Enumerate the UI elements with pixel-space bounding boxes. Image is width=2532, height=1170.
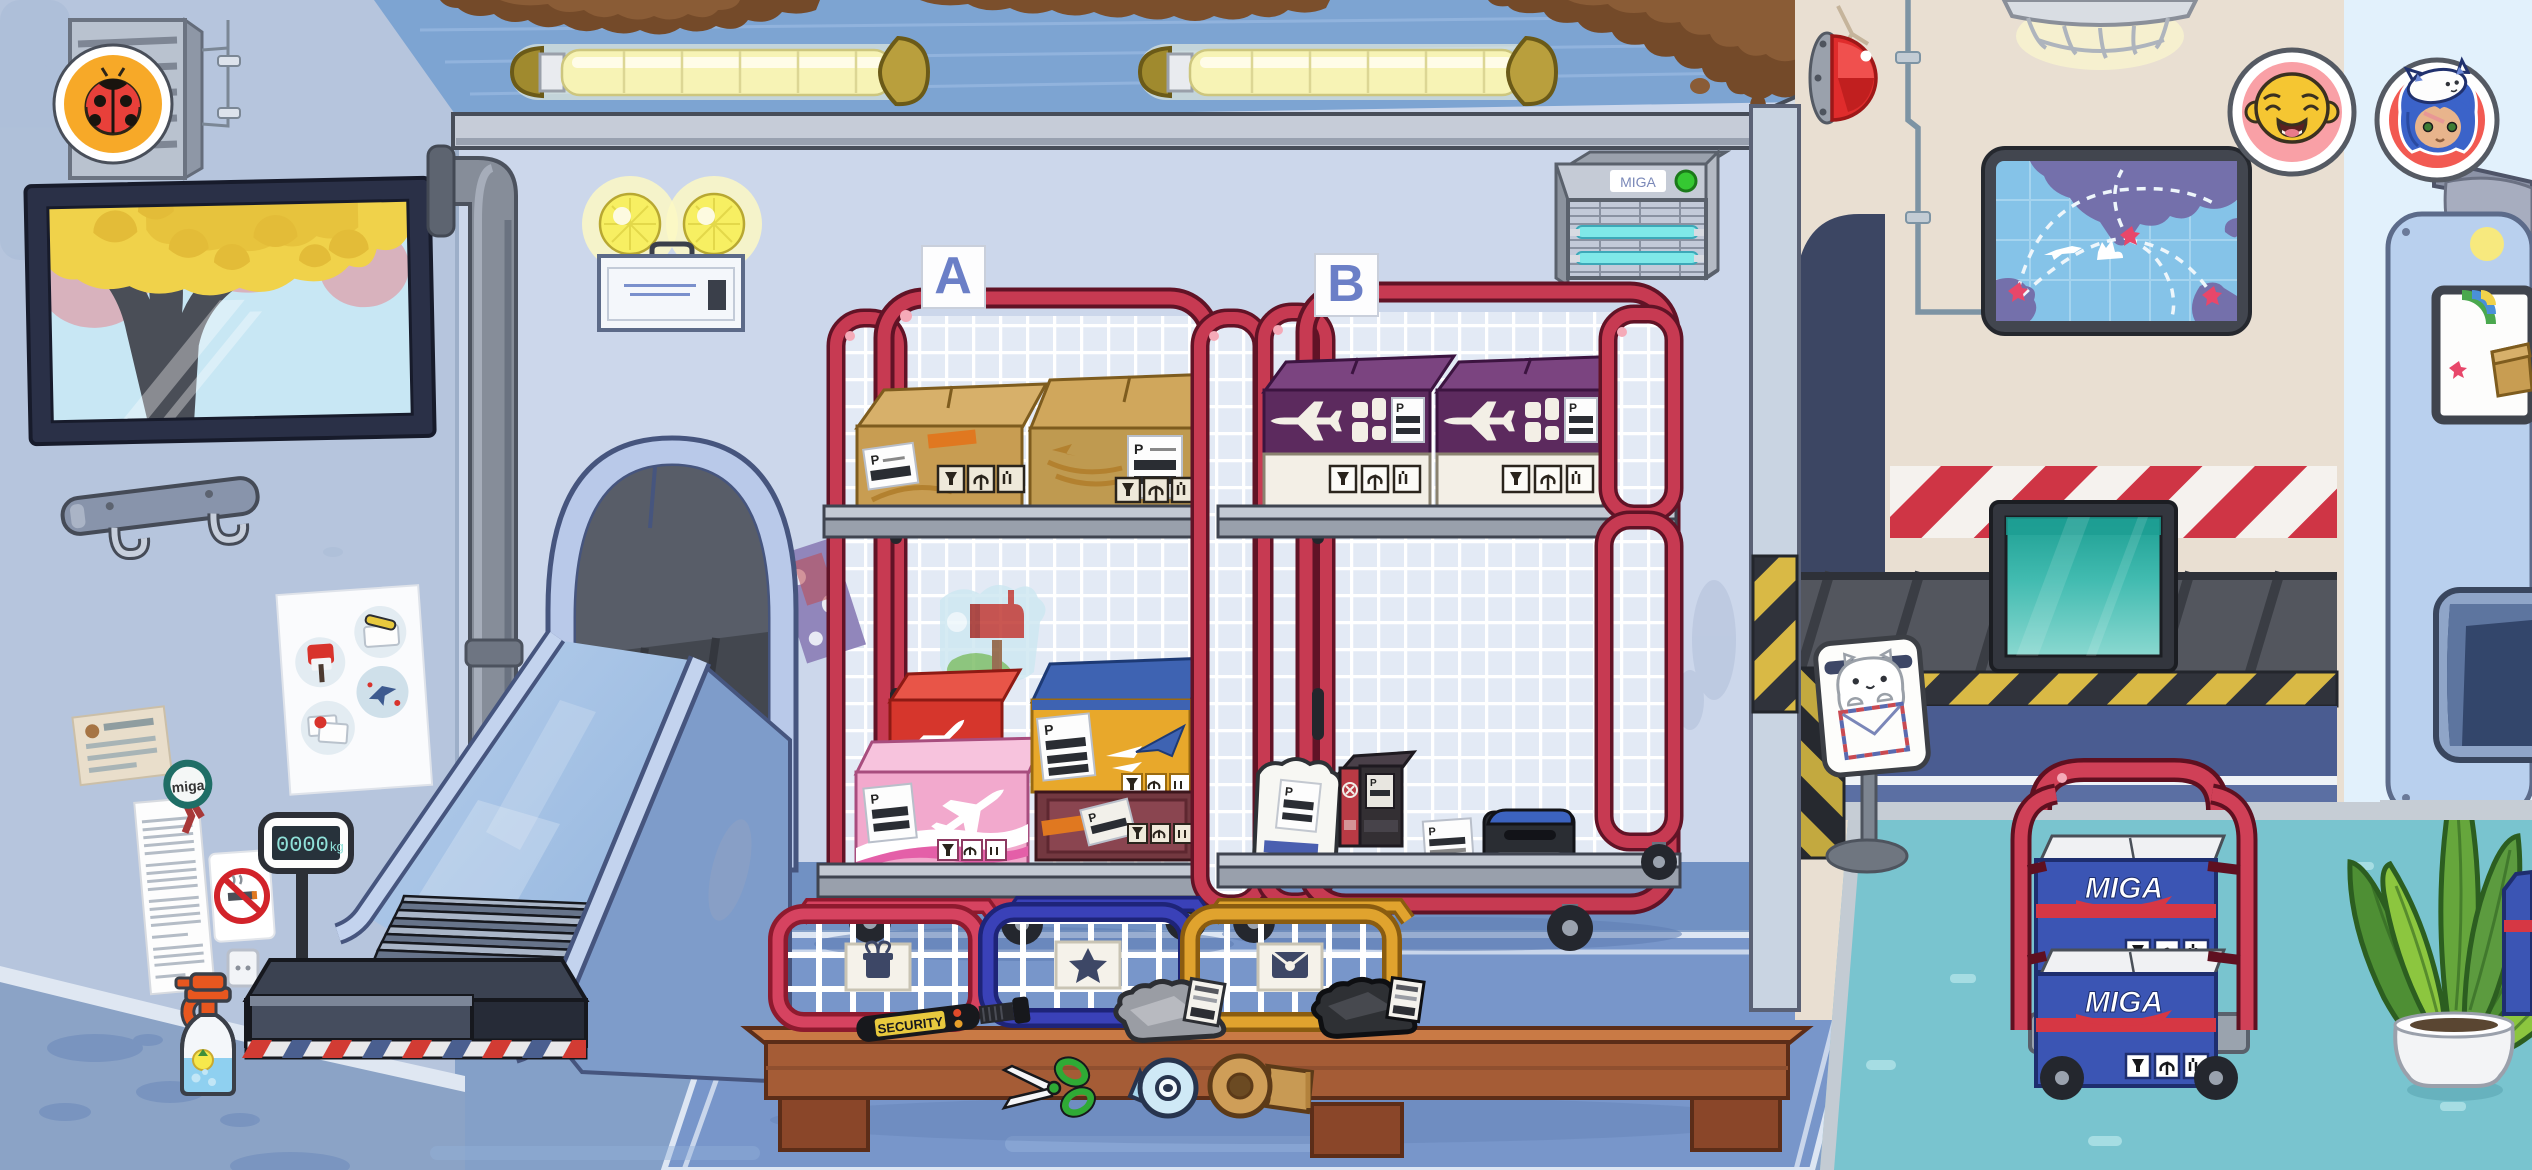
- svg-text:MIGA: MIGA: [1620, 174, 1656, 190]
- svg-text:P: P: [1284, 784, 1293, 799]
- svg-text:kg: kg: [330, 839, 344, 854]
- svg-text:MIGA: MIGA: [2085, 872, 2163, 905]
- svg-text:P: P: [1134, 441, 1143, 457]
- svg-text:P: P: [1043, 721, 1054, 738]
- svg-text:0000: 0000: [276, 833, 329, 858]
- svg-text:miga: miga: [171, 777, 205, 796]
- svg-text:P: P: [1396, 401, 1404, 415]
- svg-text:B: B: [1327, 255, 1365, 313]
- svg-text:MIGA: MIGA: [2085, 986, 2163, 1019]
- svg-text:A: A: [934, 247, 972, 305]
- svg-text:P: P: [1428, 826, 1436, 838]
- svg-text:P: P: [1370, 778, 1377, 789]
- svg-text:P: P: [1569, 401, 1577, 415]
